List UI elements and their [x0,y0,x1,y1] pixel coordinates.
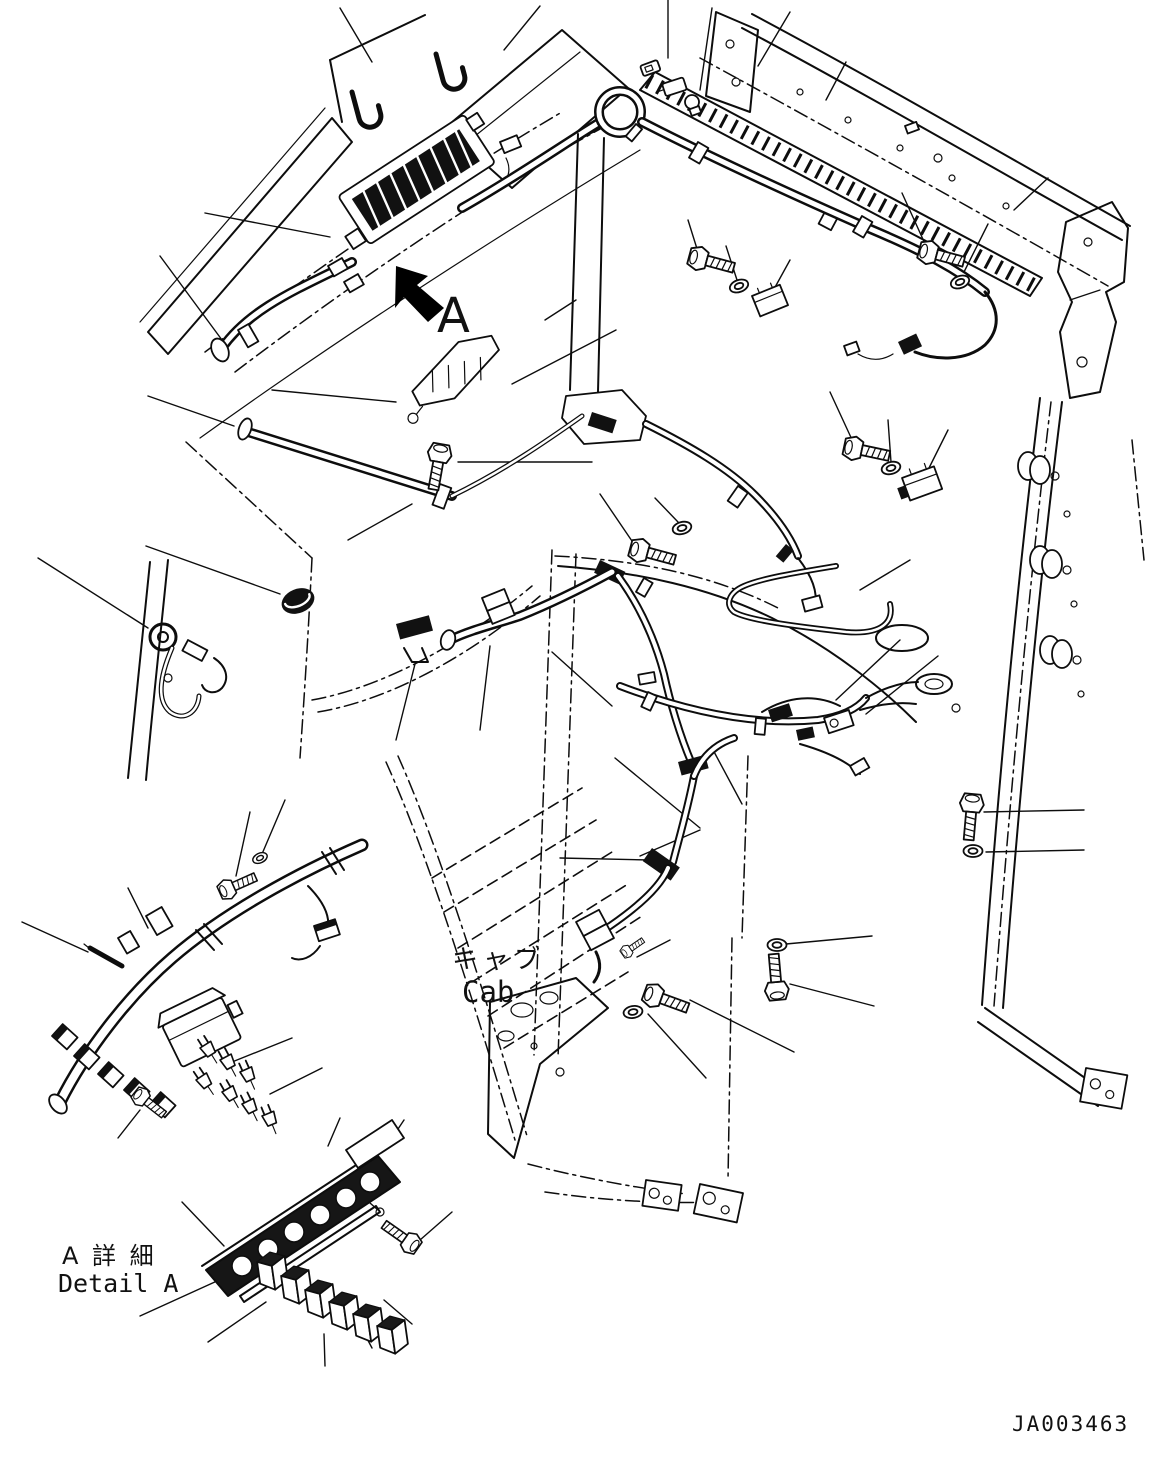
grommet [278,584,319,619]
washer [728,277,750,295]
diagram-page: A キャブ Cab A 詳 細 Detail A JA003463 [0,0,1153,1458]
drawing-number: JA003463 [1012,1412,1129,1436]
washer [880,460,901,477]
rear-right-bracket [1058,202,1128,398]
exploded-parts-drawing: A キャブ Cab A 詳 細 Detail A JA003463 [0,0,1153,1458]
relay-box [153,981,252,1069]
bolt [957,793,985,841]
base-frame [488,978,743,1222]
bolt [378,1216,424,1257]
window-clip [352,86,383,129]
main-wiring-harness [208,91,997,982]
detail-title-jp: A 詳 細 [62,1242,157,1270]
right-pillar [978,398,1127,1109]
washer [768,939,787,951]
bolt [627,536,678,571]
bolt [686,244,737,279]
cab-label-en: Cab [462,975,514,1009]
washer [251,850,269,865]
screw [619,935,647,960]
roof-panels [140,12,1130,438]
left-dangling-wire [150,624,226,716]
pin [934,154,942,162]
detail-a-assembly [46,845,362,1136]
washer [671,520,692,537]
detail-marker-label: A [437,288,470,344]
cab-label-jp: キャブ [452,945,545,975]
construction-lines [186,58,1144,1203]
switch-panel-assembly [202,1120,424,1356]
washer [964,845,983,857]
bolt [842,435,892,468]
bolt [762,953,790,1001]
connector [905,122,919,134]
relay [750,280,788,316]
washer [623,1004,644,1019]
window-clip [436,48,467,91]
detail-title-en: Detail A [58,1269,178,1298]
